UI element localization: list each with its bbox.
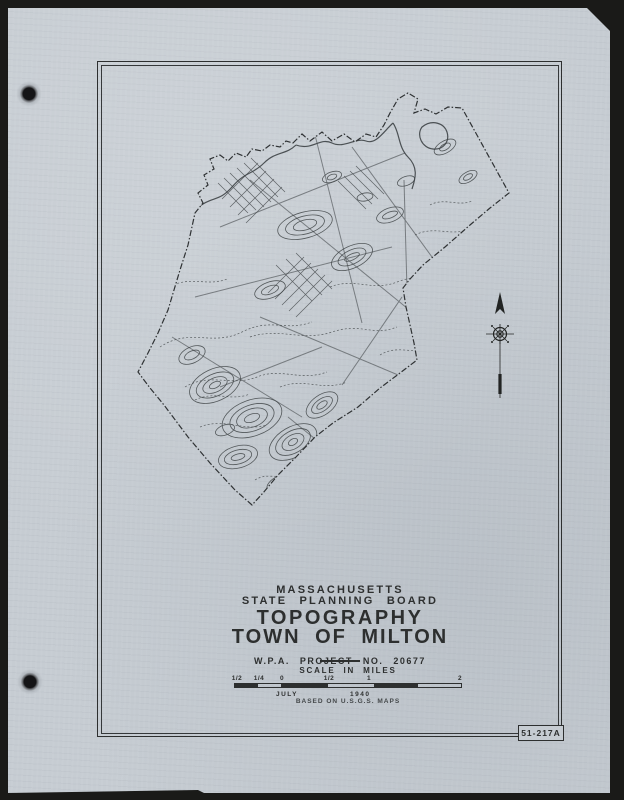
map-sheet-paper: MASSACHUSETTS STATE PLANNING BOARD TOPOG…	[8, 8, 610, 793]
date-year: 1940	[350, 691, 370, 698]
plate-number-badge: 51-217A	[518, 725, 564, 741]
scale-tick-label: 1/2	[324, 675, 335, 682]
milton-topographic-map	[100, 85, 515, 515]
agency-line: STATE PLANNING BOARD	[110, 595, 570, 607]
punch-hole-bottom	[15, 668, 45, 698]
scale-bar-block: SCALE IN MILES 1/2 1/4 0 1/2 1 2 JULY 19…	[234, 666, 462, 704]
north-arrow-icon	[485, 290, 515, 400]
scale-tick-label: 0	[280, 675, 284, 682]
source-note: BASED ON U.S.G.S. MAPS	[234, 698, 462, 705]
project-line: W.P.A. PROJECT NO. 20677	[110, 656, 570, 666]
scale-bar	[234, 683, 462, 688]
river-lines	[195, 123, 448, 210]
town-boundary	[138, 93, 509, 505]
scale-heading: SCALE IN MILES	[234, 666, 462, 675]
street-grid	[218, 158, 384, 317]
date-month: JULY	[276, 691, 298, 698]
map-subtitle: TOWN OF MILTON	[110, 626, 570, 649]
contour-rings	[176, 136, 479, 495]
scale-tick-label: 1/4	[254, 675, 265, 682]
scale-tick-label: 1/2	[232, 675, 243, 682]
scanned-map-sheet: { "colors": { "background": "#1a1a18", "…	[0, 0, 624, 800]
punch-hole-top	[14, 80, 44, 110]
scale-tick-label: 1	[367, 675, 371, 682]
scale-tick-label: 2	[458, 675, 462, 682]
